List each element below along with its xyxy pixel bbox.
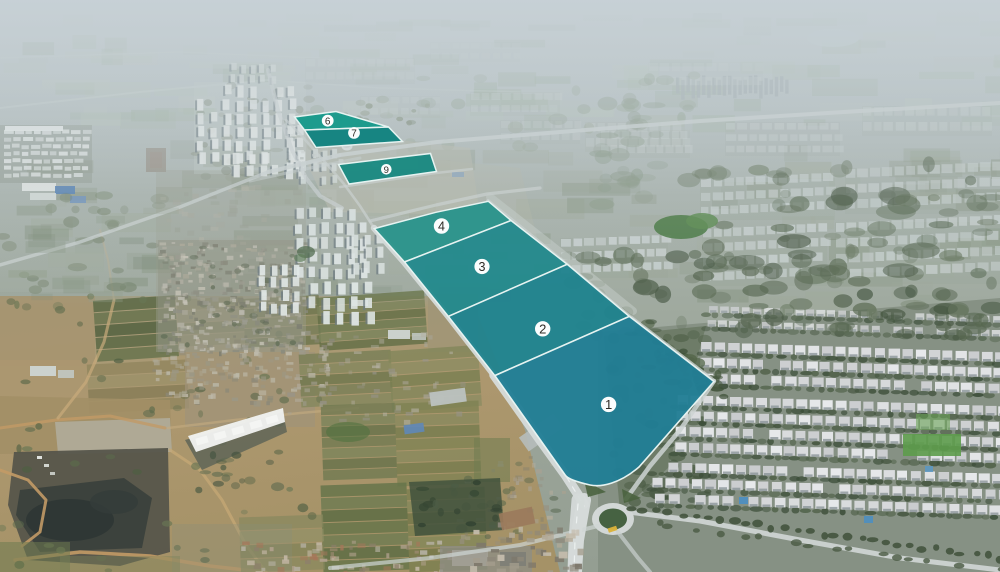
svg-text:9: 9 xyxy=(384,165,389,176)
svg-text:7: 7 xyxy=(351,129,357,140)
svg-text:3: 3 xyxy=(479,260,486,274)
svg-text:1: 1 xyxy=(605,397,612,412)
svg-text:4: 4 xyxy=(438,220,445,234)
svg-text:6: 6 xyxy=(325,116,331,127)
svg-text:2: 2 xyxy=(539,322,546,337)
